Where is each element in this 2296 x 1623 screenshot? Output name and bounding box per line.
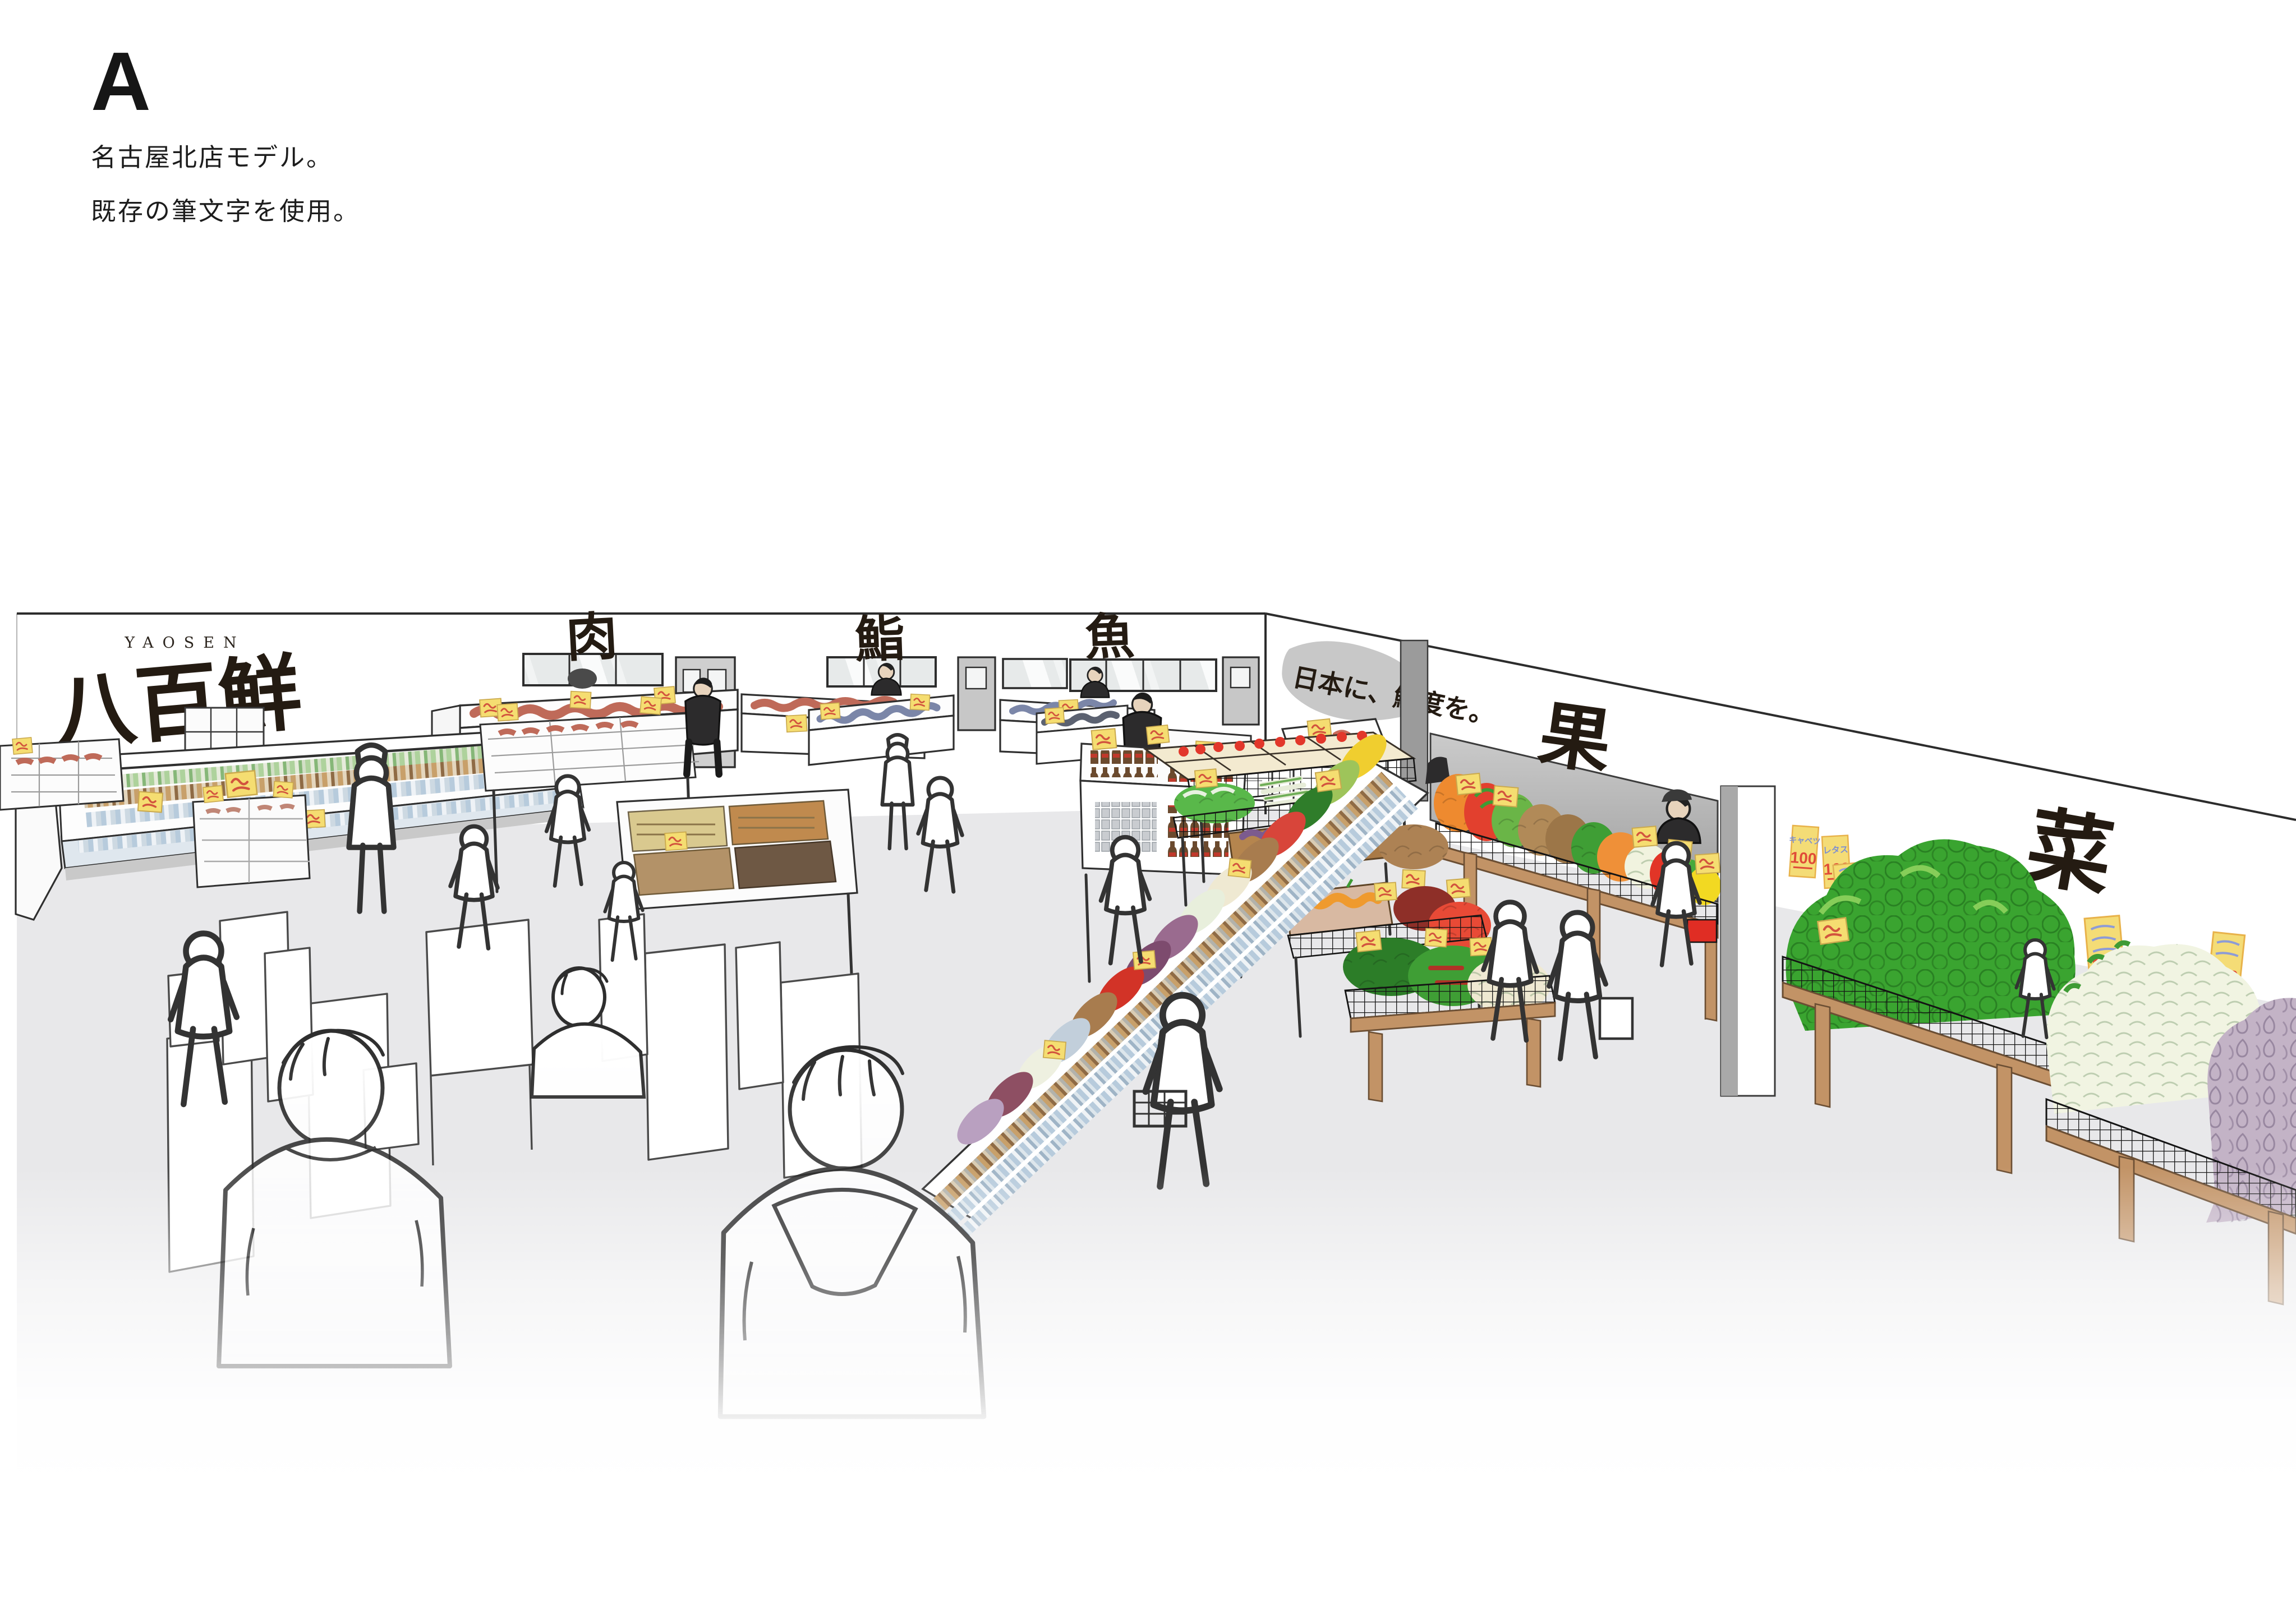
poster-cabbage-price: 100 [1790,849,1818,868]
fruit-sign: 果 [1534,691,1617,785]
sushi-sign: 鮨 [854,608,905,668]
meat-sign: 肉 [564,606,619,669]
sushi-side-window [1003,659,1067,688]
store-illustration: 100 YAOSEN 八百鮮 [0,0,2296,1623]
staff-behind-meat-window [568,668,597,689]
concept-page: A 名古屋北店モデル。 既存の筆文字を使用。 [0,0,2296,1623]
fish-door [1223,657,1259,725]
fish-sign: 魚 [1084,606,1135,666]
corner-slogan: 日本に、鮮度を。 [1276,634,1498,731]
sushi-display-case [809,694,954,765]
island-table-meat-trays-left [0,737,123,810]
sushi-door [958,657,995,730]
wall-pillar [1721,786,1775,1096]
poster-cabbage: キャベツ 100 [1787,826,1821,878]
poster-lettuce-label: レタス [1823,845,1848,856]
bottom-white [0,1514,2296,1623]
